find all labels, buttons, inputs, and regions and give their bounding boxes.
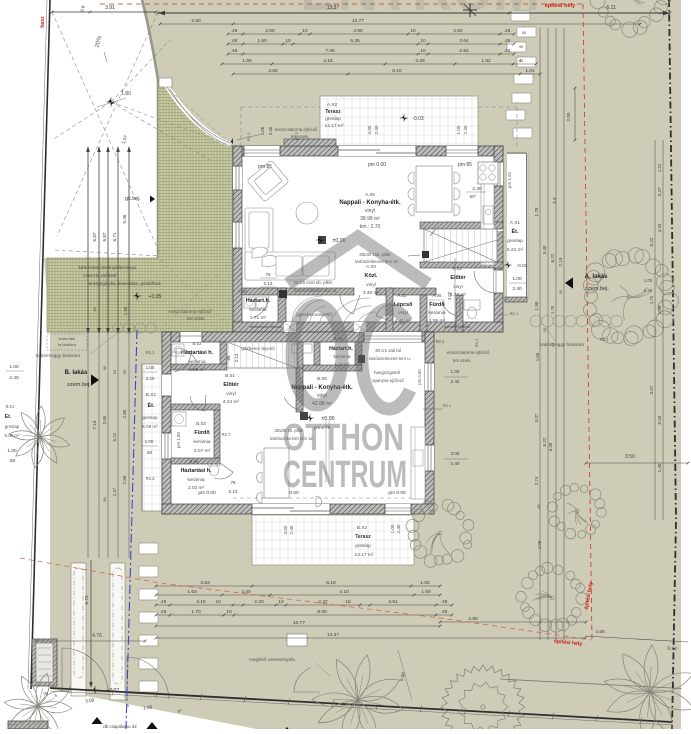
svg-text:spanyva ejtőcső: spanyva ejtőcső: [372, 378, 404, 383]
svg-text:2.40: 2.40: [512, 286, 522, 292]
svg-text:8.X1: 8.X1: [6, 404, 15, 409]
svg-text:6.72: 6.72: [84, 595, 90, 605]
svg-text:1.00: 1.00: [456, 125, 461, 134]
svg-text:19: 19: [558, 289, 563, 294]
svg-text:.60: .60: [9, 458, 16, 464]
svg-text:B.02: B.02: [192, 341, 202, 346]
svg-text:2.64: 2.64: [459, 48, 469, 54]
svg-text:B.X2: B.X2: [357, 525, 368, 531]
svg-text:OTTHON: OTTHON: [283, 417, 404, 459]
svg-text:tartószerkezeti terv u.: tartószerkezeti terv u.: [369, 356, 411, 361]
svg-text:B.X1: B.X1: [146, 392, 157, 398]
svg-text:6.71: 6.71: [112, 232, 117, 241]
svg-text:greslap: greslap: [507, 238, 523, 244]
svg-text:60°: 60°: [470, 194, 477, 199]
svg-text:2.56: 2.56: [122, 475, 127, 484]
svg-text:B.03: B.03: [196, 421, 206, 427]
svg-text:gk.bej.: gk.bej.: [125, 196, 141, 202]
svg-text:3.07: 3.07: [649, 385, 654, 394]
svg-text:4.24 m²: 4.24 m²: [223, 399, 240, 405]
svg-text:3.71 m²: 3.71 m²: [250, 315, 267, 321]
svg-text:3.46 m²: 3.46 m²: [363, 290, 380, 296]
svg-text:pm 0.60: pm 0.60: [417, 369, 422, 385]
svg-text:1.98: 1.98: [657, 305, 662, 314]
svg-text:pm 1.22: pm 1.22: [507, 172, 512, 188]
svg-text:3.39: 3.39: [415, 58, 425, 64]
svg-text:1.66: 1.66: [535, 352, 540, 361]
svg-text:6.18: 6.18: [326, 580, 336, 586]
svg-text:3.40: 3.40: [542, 245, 547, 254]
svg-text:.45: .45: [160, 609, 167, 615]
svg-text:ereszcsatorna ejtőcső: ereszcsatorna ejtőcső: [169, 309, 212, 314]
svg-text:R2.1: R2.1: [246, 132, 251, 141]
svg-text:Nappali - Konyha-étk.: Nappali - Konyha-étk.: [339, 200, 401, 206]
svg-text:fa kiváltása: fa kiváltása: [58, 343, 76, 347]
svg-text:CENTRUM: CENTRUM: [283, 454, 407, 496]
svg-text:2.80: 2.80: [468, 616, 478, 622]
svg-text:2.19: 2.19: [558, 257, 563, 266]
svg-text:B.05: B.05: [317, 376, 327, 382]
svg-text:Háztartási h.: Háztartási h.: [181, 468, 212, 474]
svg-text:2.40: 2.40: [644, 288, 653, 293]
svg-text:1.00: 1.00: [7, 448, 17, 454]
svg-text:greslap: greslap: [325, 116, 341, 122]
svg-text:3.07: 3.07: [534, 413, 539, 422]
svg-text:6.87: 6.87: [92, 232, 97, 241]
svg-text:A.06: A.06: [432, 293, 442, 298]
svg-text:2.40: 2.40: [374, 125, 379, 134]
svg-text:2.40: 2.40: [451, 461, 460, 466]
svg-text:2.30: 2.30: [472, 186, 482, 192]
svg-text:1.02: 1.02: [420, 580, 430, 586]
svg-text:3.50: 3.50: [625, 454, 635, 460]
svg-text:hasz: hasz: [40, 16, 46, 28]
svg-text:2.40: 2.40: [289, 525, 294, 534]
svg-text:6.38: 6.38: [548, 442, 553, 451]
svg-text:3.00: 3.00: [283, 525, 288, 534]
svg-text:1.60: 1.60: [421, 589, 431, 595]
svg-text:7.19: 7.19: [92, 420, 97, 429]
svg-text:A.05: A.05: [365, 192, 375, 198]
svg-text:.45: .45: [504, 38, 511, 44]
svg-text:1.75: 1.75: [550, 305, 555, 314]
svg-text:10: 10: [278, 599, 284, 605]
svg-text:10: 10: [215, 599, 221, 605]
svg-text:ereszcsatorna ejtőcső: ereszcsatorna ejtőcső: [275, 127, 318, 132]
svg-text:greslap: greslap: [142, 415, 158, 420]
svg-text:4.76: 4.76: [92, 633, 102, 639]
svg-text:.49: .49: [102, 496, 107, 502]
svg-text:5.22: 5.22: [112, 432, 117, 441]
svg-text:2.40: 2.40: [268, 126, 273, 135]
svg-text:2.00: 2.00: [447, 291, 452, 300]
svg-text:4.58: 4.58: [595, 629, 605, 635]
svg-text:R2.3: R2.3: [146, 476, 156, 481]
svg-text:ENTRUM: ENTRUM: [300, 0, 540, 23]
svg-text:13.17 m²: 13.17 m²: [355, 552, 374, 558]
svg-text:4.93: 4.93: [657, 223, 662, 232]
svg-text:A.01: A.01: [452, 266, 462, 272]
svg-text:A X1: A X1: [510, 220, 520, 226]
svg-text:90: 90: [102, 365, 107, 370]
svg-text:3.00: 3.00: [367, 125, 372, 134]
svg-text:Közl.: Közl.: [365, 273, 378, 279]
svg-text:tetúszegélyka, levendula, gomb: tetúszegélyka, levendula, gombfüvá: [87, 281, 160, 286]
svg-text:pm 0.00: pm 0.00: [198, 490, 216, 496]
svg-text:2.13: 2.13: [229, 489, 238, 494]
svg-text:2.13: 2.13: [234, 353, 239, 362]
svg-text:kör szelv.: kör szelv.: [291, 134, 309, 139]
svg-text:5.35: 5.35: [350, 38, 360, 44]
svg-text:6.03: 6.03: [657, 415, 662, 424]
svg-text:Előtér: Előtér: [223, 382, 239, 388]
svg-text:pm 85: pm 85: [458, 162, 472, 168]
svg-text:B. lakás: B. lakás: [65, 370, 88, 376]
svg-text:bm.: 2.70: bm.: 2.70: [360, 224, 381, 230]
svg-text:1.22: 1.22: [657, 163, 662, 172]
svg-text:1.00: 1.00: [9, 364, 19, 370]
svg-text:1.75: 1.75: [649, 295, 654, 304]
svg-text:3.00: 3.00: [451, 451, 460, 456]
svg-text:3.3´: 3.3´: [552, 196, 557, 204]
svg-text:.49: .49: [231, 48, 238, 54]
svg-text:.49: .49: [536, 503, 541, 509]
svg-text:1.00: 1.00: [260, 126, 265, 135]
svg-text:10: 10: [420, 48, 426, 54]
svg-text:R2.1: R2.1: [474, 338, 479, 347]
svg-text:2.40: 2.40: [396, 524, 401, 533]
svg-text:+1.05: +1.05: [149, 294, 162, 300]
svg-text:kör szelv.: kör szelv.: [187, 316, 205, 321]
svg-text:R2.2: R2.2: [436, 339, 446, 344]
svg-text:gázbeton lépcső: gázbeton lépcső: [241, 346, 275, 351]
svg-text:4.73 m²: 4.73 m²: [450, 292, 467, 298]
svg-text:1.99 m²: 1.99 m²: [429, 318, 446, 324]
svg-text:R2.1: R2.1: [443, 403, 452, 408]
svg-text:szem.bej.: szem.bej.: [585, 286, 609, 292]
svg-text:1.78: 1.78: [534, 207, 539, 216]
svg-text:Terasz: Terasz: [355, 534, 371, 540]
svg-text:2.40: 2.40: [9, 375, 19, 381]
svg-text:meglévő cseresznyefa: meglévő cseresznyefa: [249, 657, 295, 662]
svg-text:2.64: 2.64: [459, 38, 469, 44]
svg-text:kerámia: kerámia: [187, 477, 204, 483]
svg-text:5.08 m²: 5.08 m²: [5, 433, 20, 438]
svg-text:30 cm zak fal: 30 cm zak fal: [375, 348, 401, 353]
svg-text:1.62: 1.62: [481, 58, 491, 64]
svg-text:greslap: greslap: [5, 424, 20, 429]
svg-text:6.87: 6.87: [102, 232, 107, 241]
svg-text:Előtér: Előtér: [450, 275, 466, 281]
svg-text:2.65: 2.65: [122, 409, 127, 418]
svg-text:6.22: 6.22: [542, 437, 547, 446]
svg-text:pm 1.80: pm 1.80: [176, 432, 181, 448]
svg-text:2.40: 2.40: [657, 463, 662, 472]
svg-text:babérmeggy bokorsor: babérmeggy bokorsor: [36, 353, 81, 358]
svg-text:4.10: 4.10: [339, 589, 349, 595]
svg-text:B.06: B.06: [189, 459, 199, 464]
svg-text:.49: .49: [231, 28, 238, 34]
svg-text:10: 10: [542, 327, 547, 332]
svg-text:vinyl: vinyl: [366, 282, 376, 288]
svg-text:3.37: 3.37: [657, 187, 662, 196]
svg-text:R2.7: R2.7: [222, 432, 232, 437]
svg-text:10: 10: [226, 609, 232, 615]
svg-text:4.16: 4.16: [323, 58, 333, 64]
svg-text:6.10: 6.10: [392, 68, 402, 74]
svg-text:3.53: 3.53: [200, 580, 210, 586]
svg-text:A.04: A.04: [238, 289, 248, 294]
svg-text:vinyl: vinyl: [365, 208, 375, 214]
svg-text:2.13: 2.13: [264, 281, 273, 286]
svg-text:2.33: 2.33: [254, 599, 264, 605]
svg-text:2.00: 2.00: [566, 112, 571, 121]
svg-text:kéményvny ejtőcső: kéményvny ejtőcső: [250, 325, 282, 329]
svg-text:2.05: 2.05: [265, 28, 275, 34]
svg-text:10: 10: [410, 28, 416, 34]
svg-text:2.60: 2.60: [191, 18, 201, 24]
svg-text:1.04: 1.04: [525, 68, 535, 74]
svg-text:45: 45: [522, 31, 526, 35]
svg-text:10: 10: [285, 38, 291, 44]
svg-text:.49: .49: [92, 306, 97, 312]
svg-text:Fürdő: Fürdő: [429, 302, 445, 308]
svg-text:.49: .49: [231, 38, 238, 44]
svg-text:1.56: 1.56: [242, 58, 252, 64]
svg-text:Háztartási h.: Háztartási h.: [181, 350, 214, 356]
svg-text:.60: .60: [146, 450, 153, 455]
svg-text:intenzív zöldtető: intenzív zöldtető: [83, 273, 117, 278]
svg-text:4.90: 4.90: [353, 28, 363, 34]
svg-text:2.64: 2.64: [453, 28, 463, 34]
svg-text:db csapókapu 42: db csapókapu 42: [103, 724, 137, 729]
svg-text:76: 76: [230, 480, 236, 485]
svg-text:vinyl: vinyl: [226, 391, 236, 397]
svg-text:5.36: 5.36: [122, 214, 127, 223]
svg-text:6.22: 6.22: [649, 237, 654, 246]
svg-text:A. lakás: A. lakás: [585, 274, 608, 280]
svg-text:3.65: 3.65: [102, 415, 107, 424]
svg-text:2.10: 2.10: [196, 599, 206, 605]
svg-text:Fürdő: Fürdő: [194, 430, 210, 436]
svg-text:8.00: 8.00: [317, 609, 327, 615]
svg-text:Terasz: Terasz: [325, 109, 341, 115]
svg-text:1.00: 1.00: [145, 439, 154, 444]
svg-text:ereszcsatorna ejtőcső: ereszcsatorna ejtőcső: [447, 350, 490, 355]
svg-text:2.40: 2.40: [451, 379, 460, 384]
svg-text:13.37: 13.37: [327, 632, 339, 638]
svg-text:-0.02: -0.02: [517, 263, 528, 269]
svg-text:1.00: 1.00: [390, 524, 395, 533]
svg-text:kerámia: kerámia: [428, 310, 445, 316]
svg-text:R2.1: R2.1: [600, 337, 610, 342]
svg-text:1.70: 1.70: [191, 609, 201, 615]
svg-text:kétszintes növényállományú.: kétszintes növényállományú.: [79, 265, 138, 270]
svg-text:1.47: 1.47: [112, 487, 117, 496]
svg-text:6.11: 6.11: [606, 5, 616, 11]
svg-text:A.02: A.02: [397, 293, 407, 298]
svg-text:R2.1: R2.1: [510, 311, 519, 316]
svg-text:.45: .45: [504, 48, 511, 54]
svg-text:1.00: 1.00: [644, 278, 653, 283]
svg-text:5.23 m²: 5.23 m²: [507, 247, 524, 253]
svg-text:3.60: 3.60: [268, 68, 278, 74]
svg-text:B.01: B.01: [225, 373, 235, 379]
svg-text:2.40: 2.40: [463, 125, 468, 134]
svg-text:pm 0.00: pm 0.00: [368, 162, 386, 168]
svg-text:kerámia: kerámia: [249, 307, 266, 313]
svg-text:vinyl: vinyl: [453, 284, 463, 290]
svg-text:10.77: 10.77: [293, 620, 305, 626]
svg-text:13.17 m²: 13.17 m²: [325, 123, 344, 129]
svg-text:10: 10: [302, 28, 308, 34]
svg-text:greslap: greslap: [355, 543, 371, 549]
svg-text:Ét.: Ét.: [148, 401, 155, 409]
svg-text:babérmeggy bokorsor: babérmeggy bokorsor: [540, 342, 585, 347]
svg-text:7.05: 7.05: [325, 48, 335, 54]
svg-text:3.91: 3.91: [105, 5, 115, 11]
svg-text:Et.: Et.: [5, 414, 12, 420]
svg-text:18: 18: [345, 599, 351, 605]
svg-text:10: 10: [420, 38, 426, 44]
svg-text:1.00: 1.00: [512, 276, 522, 282]
svg-text:.49: .49: [441, 609, 448, 615]
svg-text:építési hely: építési hely: [545, 3, 576, 9]
svg-text:75: 75: [265, 272, 271, 277]
svg-text:R2.1: R2.1: [146, 350, 156, 355]
svg-text:2.74: 2.74: [534, 476, 539, 485]
svg-text:1.60: 1.60: [257, 38, 267, 44]
svg-text:1.00: 1.00: [451, 369, 460, 374]
svg-text:1.98: 1.98: [534, 301, 539, 310]
svg-text:1.00: 1.00: [146, 365, 155, 370]
svg-text:.45: .45: [504, 28, 511, 34]
svg-text:tartószerkezeti terv sz.: tartószerkezeti terv sz.: [294, 288, 338, 293]
svg-text:-0.03: -0.03: [412, 116, 424, 122]
svg-text:kerámia: kerámia: [188, 359, 205, 365]
svg-text:3.07 m²: 3.07 m²: [194, 448, 211, 454]
svg-text:10: 10: [112, 369, 117, 374]
svg-text:6.58: 6.58: [667, 646, 677, 652]
svg-text:1.98: 1.98: [123, 306, 128, 315]
svg-text:1.08: 1.08: [537, 540, 542, 549]
svg-text:5.08 m²: 5.08 m²: [142, 424, 158, 429]
svg-text:A.X2: A.X2: [327, 102, 338, 108]
svg-text:szem.bej.: szem.bej.: [67, 382, 91, 388]
svg-text:2.51: 2.51: [388, 599, 398, 605]
svg-text:2.40: 2.40: [146, 376, 155, 381]
svg-text:38.98 m²: 38.98 m²: [360, 216, 380, 222]
svg-text:90: 90: [122, 369, 127, 374]
svg-text:3.09 m²: 3.09 m²: [189, 367, 206, 373]
svg-text:hangszigetelt: hangszigetelt: [374, 370, 401, 375]
svg-text:Háztart.h.: Háztart.h.: [246, 298, 271, 304]
svg-text:pm 85: pm 85: [258, 164, 272, 170]
svg-text:45: 45: [519, 59, 523, 63]
svg-text:1.63: 1.63: [187, 589, 197, 595]
svg-text:1.80: 1.80: [121, 91, 131, 97]
svg-text:A.03: A.03: [366, 264, 376, 270]
svg-text:közterületi: közterületi: [59, 337, 76, 341]
svg-text:88: 88: [226, 355, 231, 360]
svg-text:44: 44: [550, 342, 555, 347]
svg-text:kör szelv.: kör szelv.: [453, 358, 471, 363]
svg-text:germek ejtőcső: germek ejtőcső: [444, 325, 470, 329]
svg-text:49: 49: [519, 45, 523, 49]
svg-text:kerámia: kerámia: [193, 439, 210, 445]
svg-text:Ét.: Ét.: [512, 227, 519, 235]
svg-text:.45: .45: [160, 599, 167, 605]
svg-text:.49: .49: [441, 599, 448, 605]
svg-text:6.22: 6.22: [550, 253, 555, 262]
